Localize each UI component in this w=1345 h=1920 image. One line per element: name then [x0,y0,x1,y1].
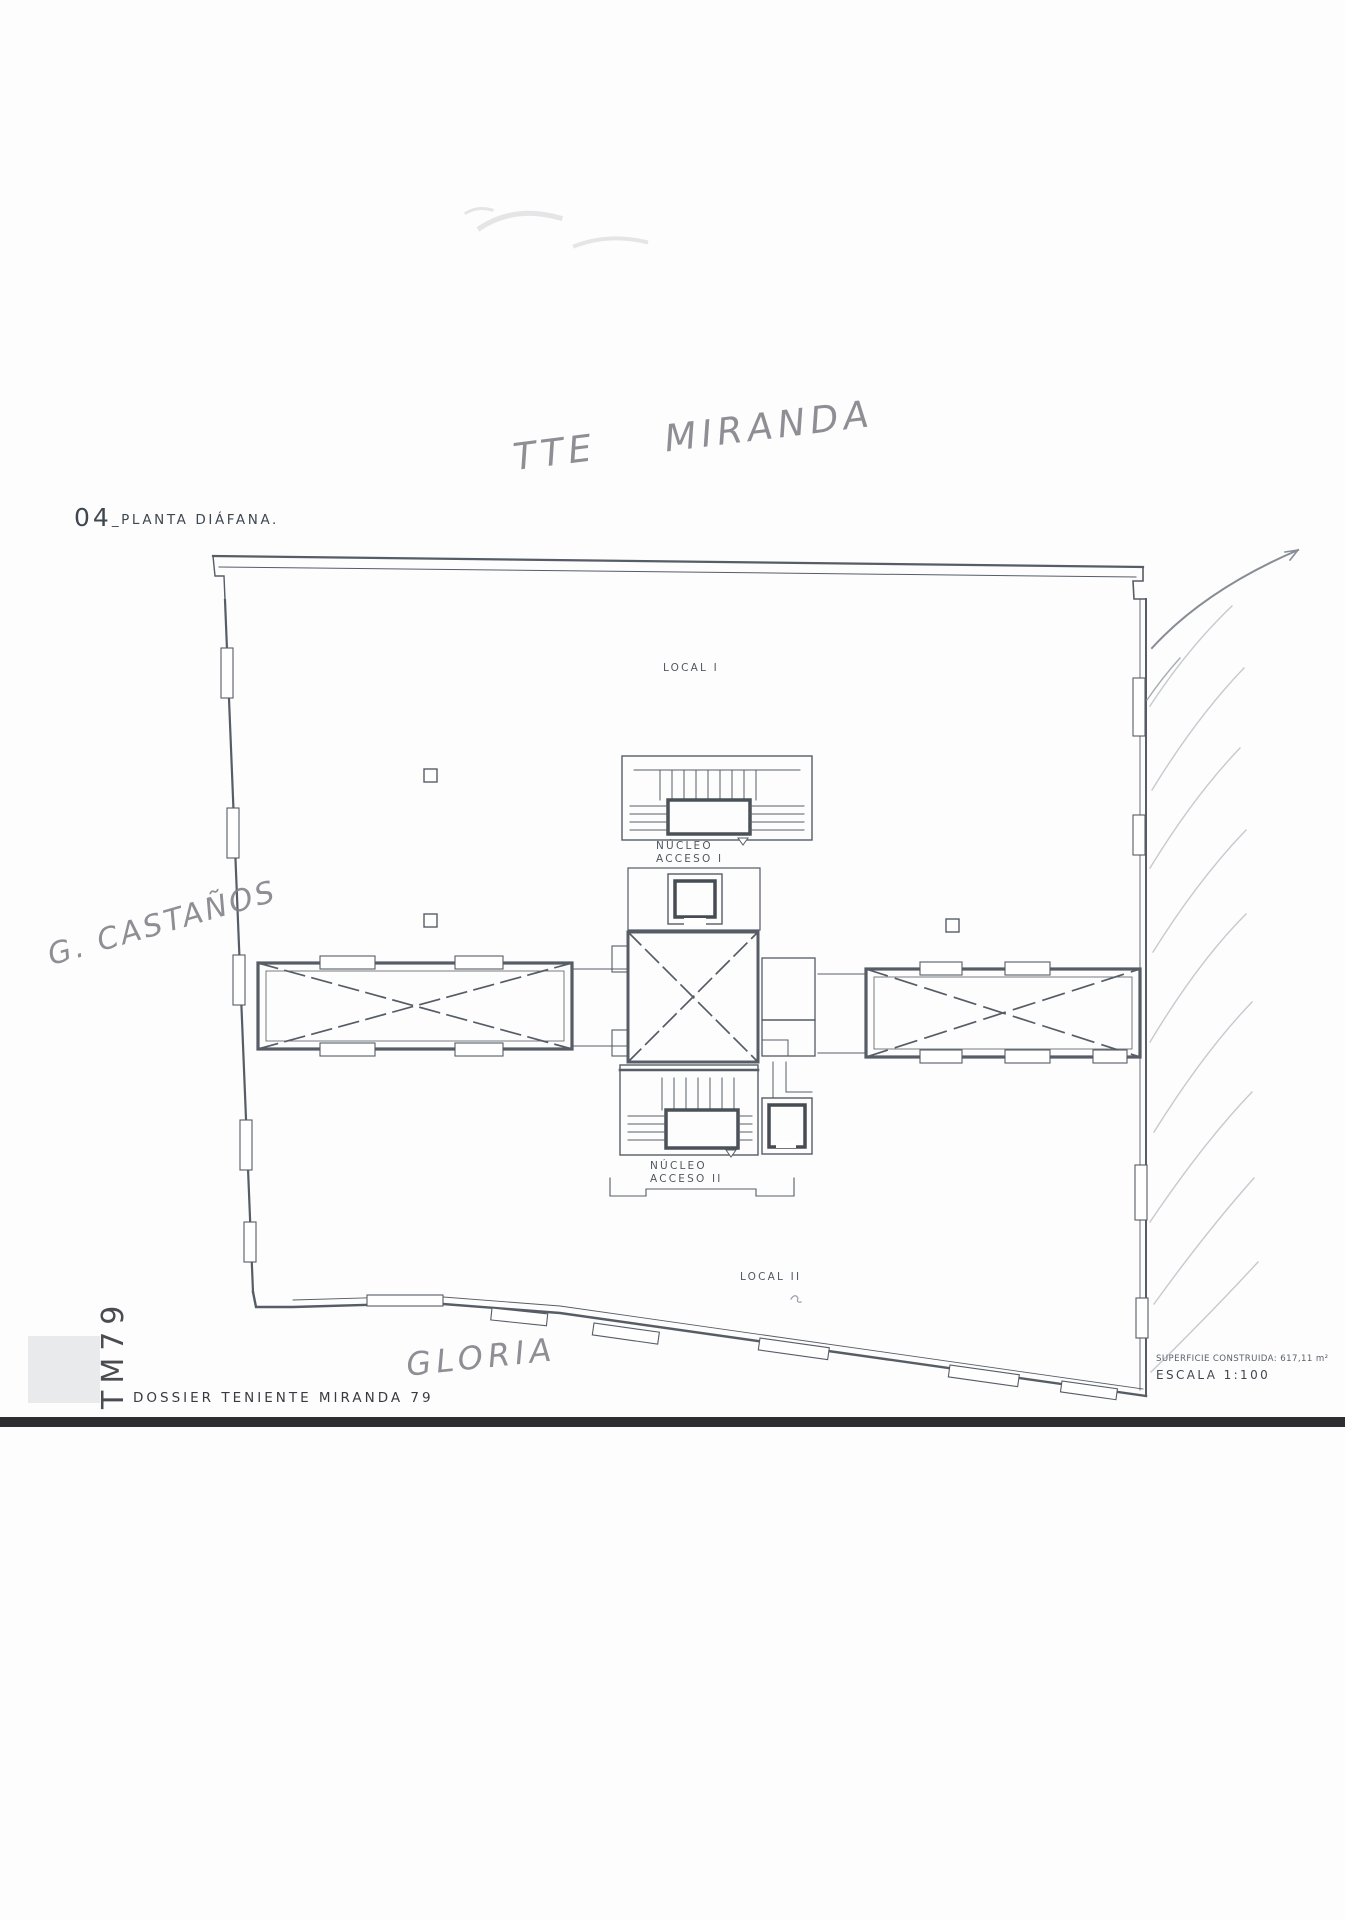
nucleo-1-line-2: ACCESO I [656,853,723,866]
label-nucleo-acceso-2: NÚCLEO ACCESO II [650,1160,723,1186]
dossier-title: DOSSIER TENIENTE MIRANDA 79 [133,1390,434,1406]
project-code-vertical: TM79 [96,1299,131,1409]
arrow-stroke [1152,550,1298,648]
stair-core-1 [622,756,812,845]
sheet-name: _PLANTA DIÁFANA. [112,512,279,528]
surface-note: SUPERFICIE CONSTRUIDA: 617,11 m² [1156,1354,1328,1364]
label-local-2: LOCAL II [740,1271,801,1283]
footer-rule-bar [0,1417,1345,1427]
building-outline [213,556,1146,1396]
elevator-2 [762,1062,812,1154]
right-wing-void [866,962,1140,1063]
floor-plan-drawing [0,0,1345,1920]
stray-mark [791,1296,801,1302]
nucleo-1-line-1: NÚCLEO [656,840,723,853]
nucleo-2-line-2: ACCESO II [650,1173,723,1186]
service-rooms [762,958,815,1056]
facade-hatch-strokes [1147,606,1258,1372]
left-wall-windows [221,648,256,1262]
scale-note: ESCALA 1:100 [1156,1368,1270,1382]
elevator-1 [628,868,760,930]
left-wing-void [258,956,572,1056]
label-local-1: LOCAL I [663,662,719,674]
sheet-title: 04_PLANTA DIÁFANA. [74,503,279,532]
label-nucleo-acceso-1: NÚCLEO ACCESO I [656,840,723,866]
pencil-smudge [466,209,646,246]
footer-watermark-block [28,1336,100,1403]
patio-void [612,932,758,1062]
scanned-plan-sheet: 04_PLANTA DIÁFANA. LOCAL I NÚCLEO ACCESO… [0,0,1345,1920]
corridor-walls [572,969,866,1053]
nucleo-2-line-1: NÚCLEO [650,1160,723,1173]
sheet-number: 04 [74,503,112,532]
